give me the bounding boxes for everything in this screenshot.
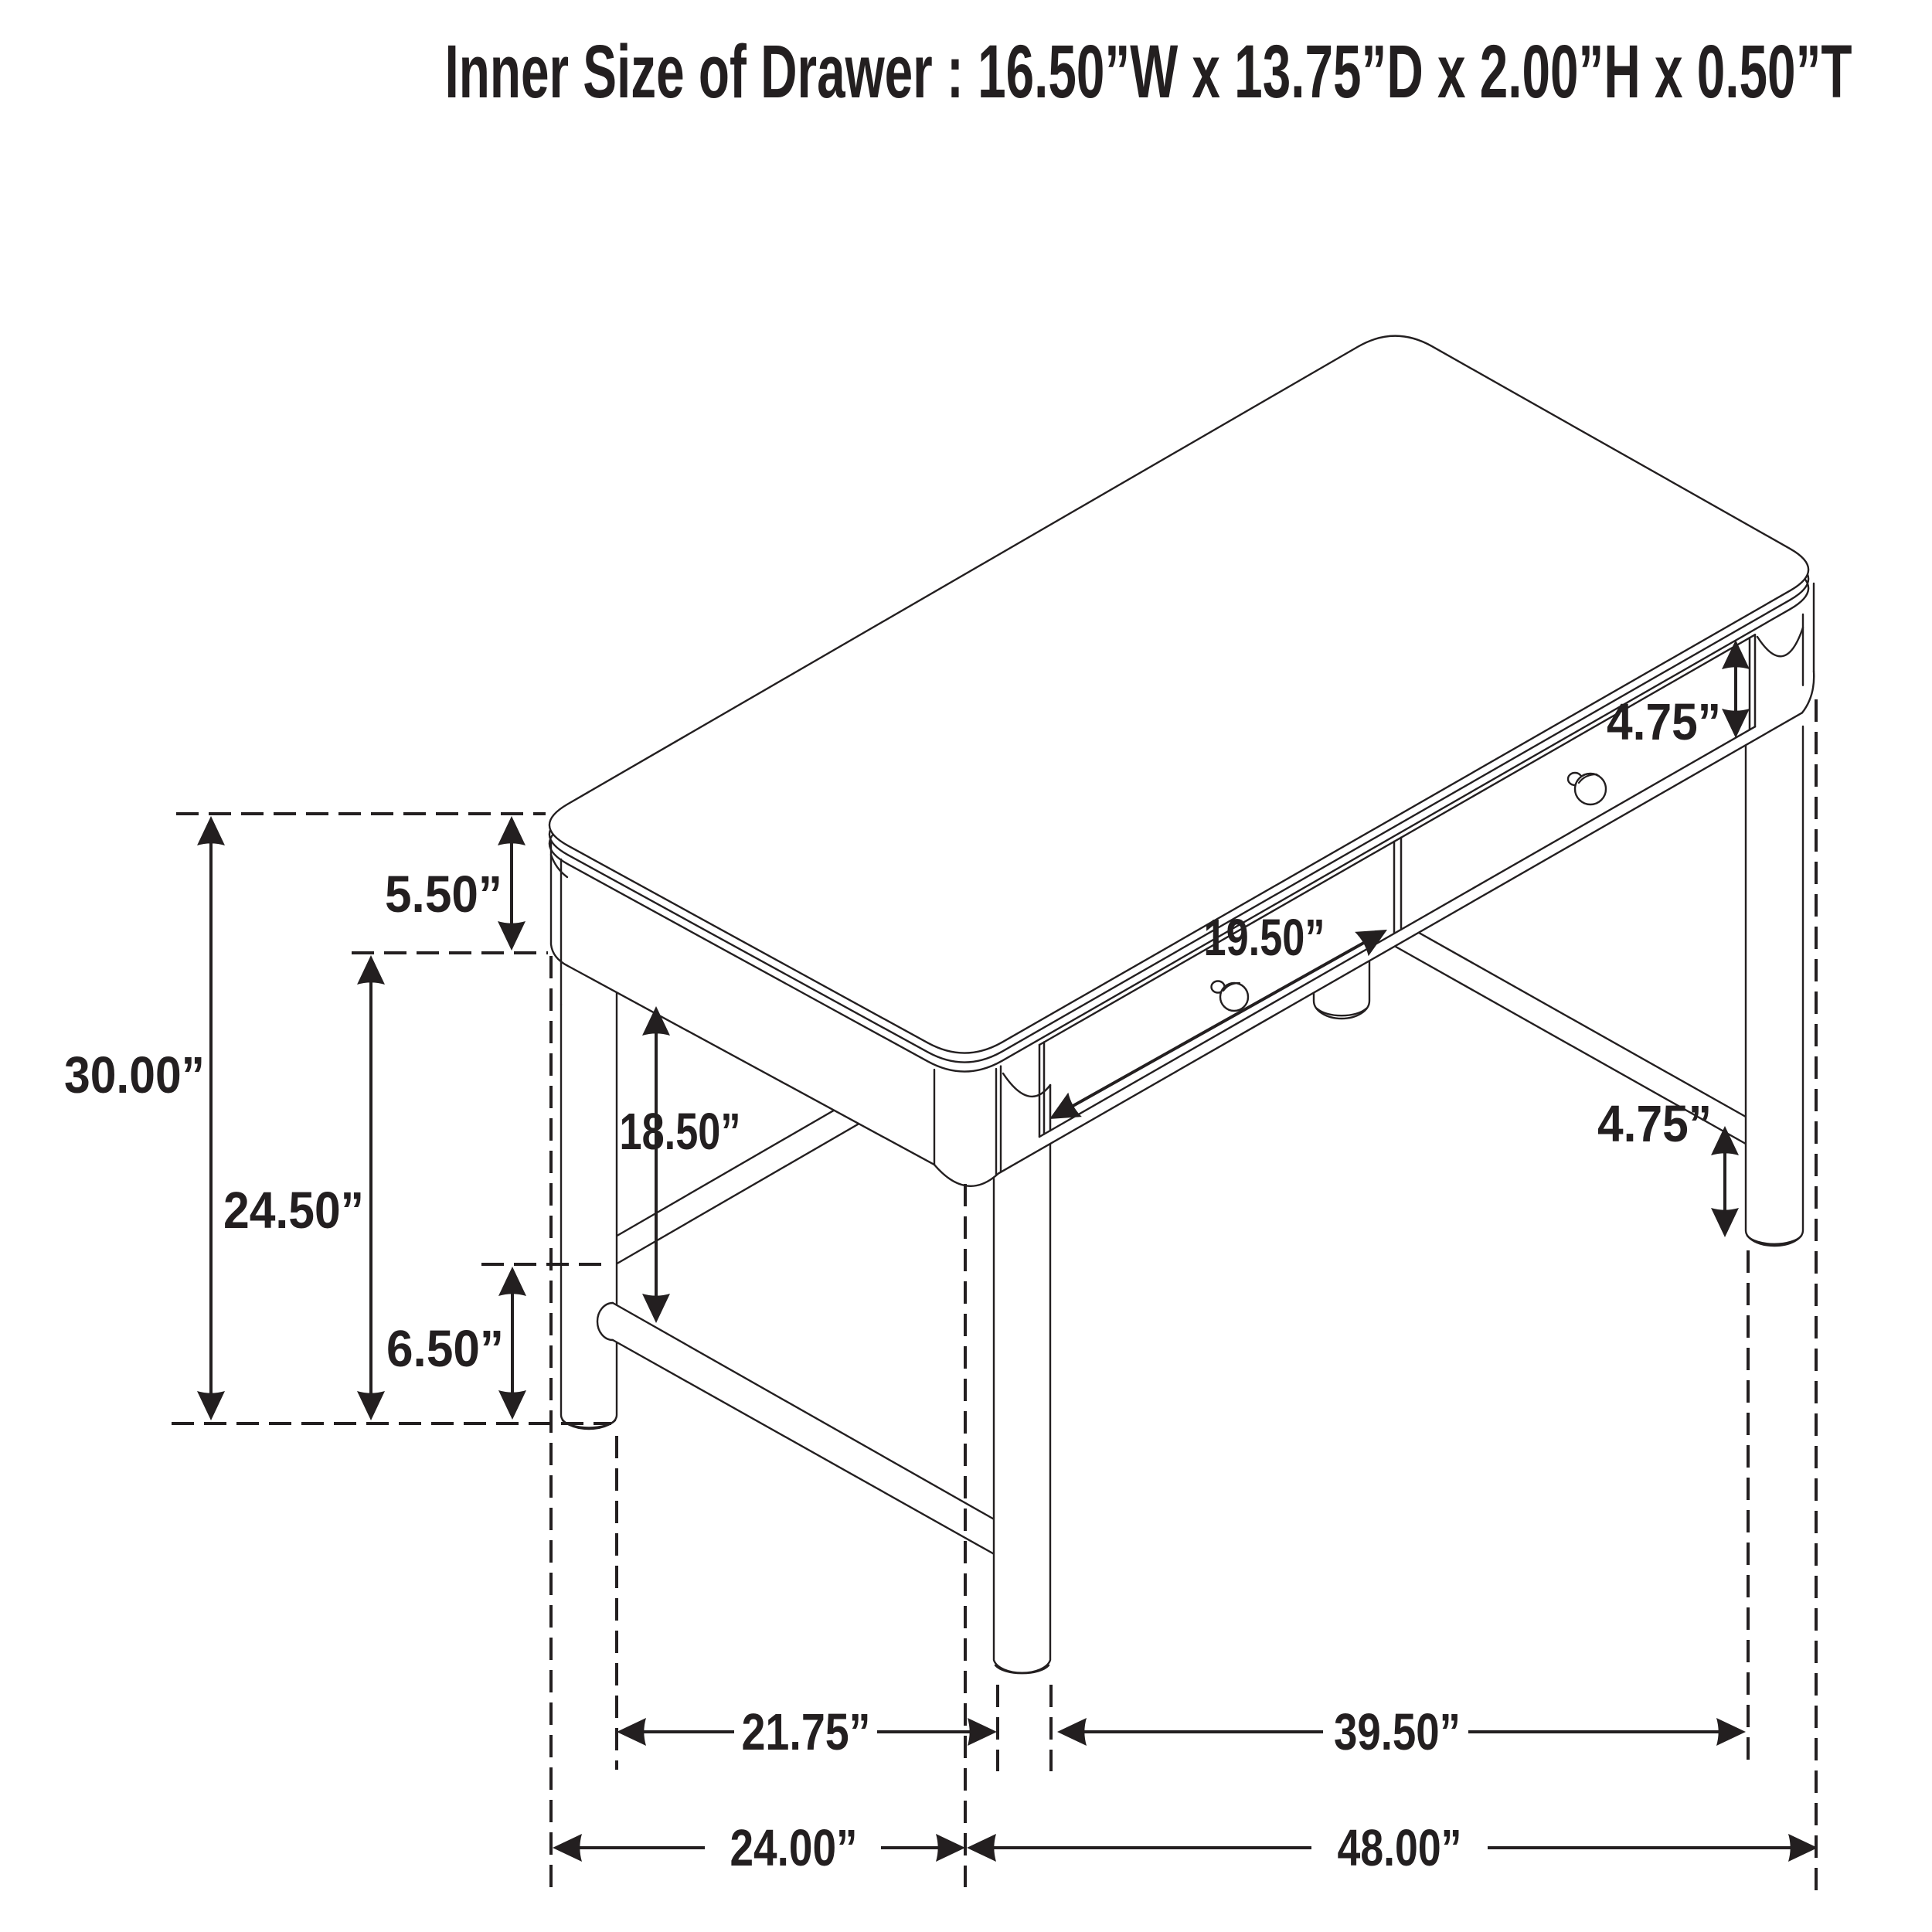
svg-text:5.50”: 5.50” (385, 866, 502, 923)
svg-text:18.50”: 18.50” (620, 1103, 741, 1161)
svg-text:48.00”: 48.00” (1338, 1819, 1462, 1877)
svg-text:6.50”: 6.50” (386, 1320, 504, 1378)
svg-text:21.75”: 21.75” (742, 1703, 871, 1761)
svg-text:4.75”: 4.75” (1607, 693, 1721, 751)
svg-text:4.75”: 4.75” (1597, 1095, 1712, 1153)
svg-text:Inner Size of Drawer : 16.50”W: Inner Size of Drawer : 16.50”W x 13.75”D… (445, 29, 1852, 114)
svg-text:19.50”: 19.50” (1204, 909, 1325, 967)
svg-text:24.00”: 24.00” (730, 1819, 858, 1877)
svg-text:30.00”: 30.00” (64, 1046, 205, 1104)
svg-text:39.50”: 39.50” (1334, 1703, 1461, 1761)
svg-text:24.50”: 24.50” (223, 1182, 364, 1240)
